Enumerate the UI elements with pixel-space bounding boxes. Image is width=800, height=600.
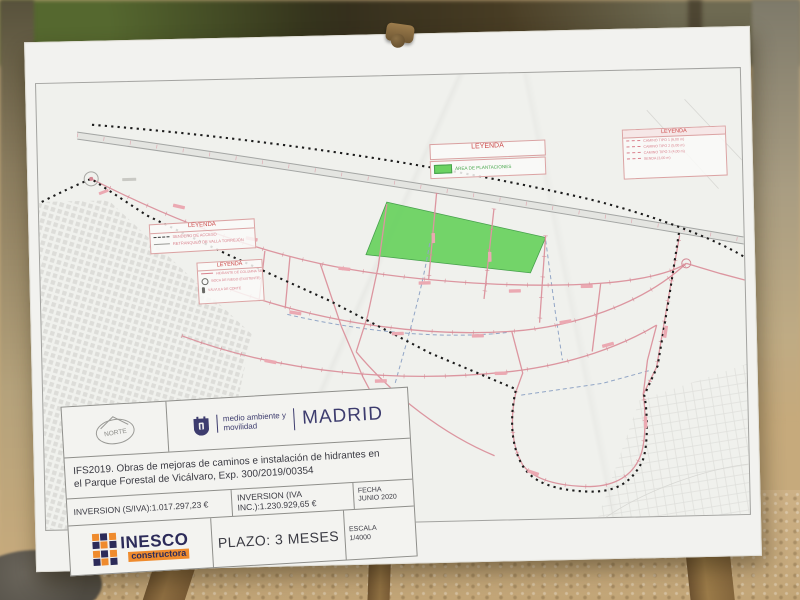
inesco-squares-icon	[92, 532, 118, 566]
wooden-clip	[385, 22, 415, 44]
legend-hidrantes: LEYENDA HIDRANTE DE COLUMNA SECA CON ARQ…	[196, 259, 264, 305]
photo-of-construction-sign: LEYENDA SENDERO DE ACCESO RETRANQUEO DE …	[0, 0, 800, 600]
line-swatch	[201, 273, 213, 275]
contractor-subtitle: constructora	[128, 548, 190, 562]
legend-title: LEYENDA	[430, 141, 544, 154]
title-block: NORTE medio ambiente y movilidad MADRID	[60, 387, 417, 577]
north-cell: NORTE	[62, 402, 170, 458]
dashed-line-swatch	[627, 158, 641, 160]
plazo-cell: PLAZO: 3 MESES	[211, 511, 347, 569]
svg-text:NORTE: NORTE	[104, 428, 128, 439]
madrid-crest-icon	[193, 414, 211, 436]
sign-poster: LEYENDA SENDERO DE ACCESO RETRANQUEO DE …	[24, 26, 762, 572]
department-label: medio ambiente y movilidad	[217, 411, 287, 433]
plantation-area	[365, 199, 547, 277]
legend-item-label: ÁREA DE PLANTACIONES	[455, 164, 511, 171]
fecha-value: JUNIO 2020	[358, 493, 397, 504]
circle-symbol-icon	[201, 278, 208, 285]
north-compass-icon: NORTE	[90, 409, 139, 450]
urban-blocks-bottom-right	[595, 364, 750, 517]
dashed-line-swatch	[153, 236, 169, 238]
fecha-cell: FECHA JUNIO 2020	[353, 480, 413, 509]
city-wordmark: MADRID	[293, 403, 384, 430]
contractor-logo: INESCO constructora	[68, 518, 214, 576]
legend-item-label: BOCA DE RIEGO (EXISTENTE)	[211, 276, 260, 283]
legend-item-label: SENDA (3,00 m)	[644, 156, 671, 161]
legend-accesos: LEYENDA SENDERO DE ACCESO RETRANQUEO DE …	[149, 218, 257, 254]
line-swatch	[154, 243, 170, 245]
dashed-line-swatch	[626, 146, 640, 148]
escala-value: 1/4000	[349, 534, 371, 544]
legend-item-label: VÁLVULA DE CORTE	[208, 286, 241, 292]
background-right	[752, 0, 800, 420]
green-area-swatch	[434, 164, 452, 174]
hydrant-symbol-icon	[202, 287, 205, 293]
escala-cell: ESCALA 1/4000	[344, 507, 417, 561]
dashed-line-swatch	[627, 152, 641, 154]
dashed-line-swatch	[626, 140, 640, 142]
legend-caminos: LEYENDA CAMINO TIPO 1 (6,00 m) CAMINO TI…	[622, 126, 728, 180]
